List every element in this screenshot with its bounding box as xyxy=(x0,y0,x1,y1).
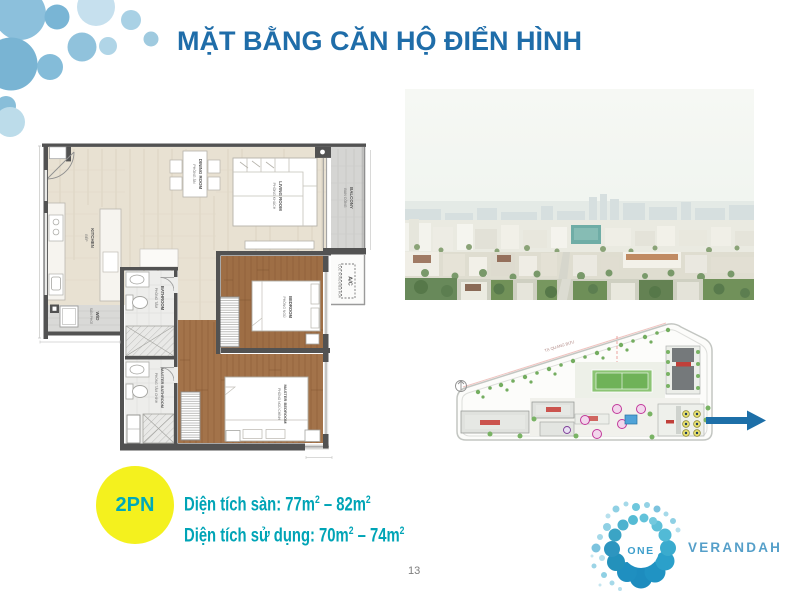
svg-text:DINING ROOM: DINING ROOM xyxy=(198,159,203,190)
svg-text:CỤC NÓNG ĐIỀU HÒA: CỤC NÓNG ĐIỀU HÒA xyxy=(338,264,343,299)
svg-text:MASTER BATHROOM: MASTER BATHROOM xyxy=(160,368,165,408)
svg-text:PHÒNG KHÁCH: PHÒNG KHÁCH xyxy=(272,183,277,210)
svg-text:KITCHEN: KITCHEN xyxy=(90,228,95,248)
svg-text:PHÒNG TẮM CHÍNH: PHÒNG TẮM CHÍNH xyxy=(154,373,159,404)
svg-text:LIVING ROOM: LIVING ROOM xyxy=(278,181,283,211)
svg-text:PHÒNG ĂN: PHÒNG ĂN xyxy=(192,164,197,184)
svg-text:W/D: W/D xyxy=(95,312,100,322)
svg-text:MASTER BEDROOM: MASTER BEDROOM xyxy=(283,385,288,425)
svg-text:SÂN PHƠI: SÂN PHƠI xyxy=(89,308,93,325)
svg-text:VERANDAH: VERANDAH xyxy=(688,540,782,555)
svg-text:PHÒNG NGỦ CHÍNH: PHÒNG NGỦ CHÍNH xyxy=(277,388,282,420)
svg-text:BALCONY: BALCONY xyxy=(349,187,354,209)
svg-text:BAN CÔNG: BAN CÔNG xyxy=(343,188,348,207)
svg-text:TẠ QUANG BỨU: TẠ QUANG BỨU xyxy=(544,339,575,353)
svg-text:A/C: A/C xyxy=(347,276,353,286)
svg-text:PHÒNG TẮM: PHÒNG TẮM xyxy=(154,288,159,309)
svg-text:BẾP: BẾP xyxy=(84,234,89,242)
svg-text:BATHROOM: BATHROOM xyxy=(160,286,165,311)
svg-text:PHÒNG NGỦ: PHÒNG NGỦ xyxy=(282,297,287,318)
svg-text:BEDROOM: BEDROOM xyxy=(288,296,293,318)
svg-text:ONE: ONE xyxy=(627,545,654,557)
